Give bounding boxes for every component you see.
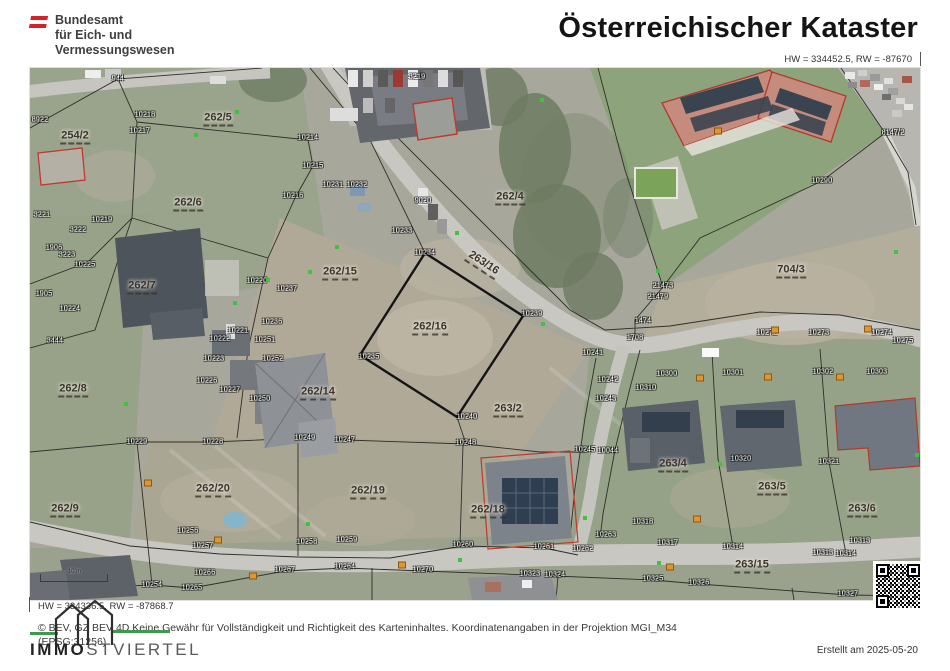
- parcel-number-label: 254/2: [60, 130, 90, 145]
- survey-point-label: 10217: [130, 128, 150, 135]
- green-survey-marker: [915, 453, 919, 457]
- coordinate-top-right: HW = 334452.5, RW = -87670: [784, 54, 912, 65]
- orange-boundary-marker: [836, 374, 844, 381]
- green-survey-marker: [266, 278, 270, 282]
- parcel-number-label: 262/19: [350, 485, 386, 500]
- agency-name: Bundesamt für Eich- und Vermessungswesen: [55, 13, 175, 58]
- survey-point-label: 10252: [263, 356, 283, 363]
- survey-point-label: 10234: [415, 250, 435, 257]
- survey-point-label: 10267: [275, 567, 295, 574]
- survey-point-label: 10301: [723, 370, 743, 377]
- parcel-number-label: 262/14: [300, 386, 336, 401]
- survey-point-label: 10245: [575, 447, 595, 454]
- orange-boundary-marker: [864, 326, 872, 333]
- green-survey-marker: [124, 402, 128, 406]
- survey-point-label: 10247: [335, 437, 355, 444]
- survey-point-label: 10263: [596, 532, 616, 539]
- survey-point-label: 10321: [819, 459, 839, 466]
- orange-boundary-marker: [714, 128, 722, 135]
- parcel-number-label: 262/18: [470, 504, 506, 519]
- cadastral-print-page: Bundesamt für Eich- und Vermessungswesen…: [0, 0, 950, 671]
- survey-point-label: 3221: [34, 212, 50, 219]
- survey-point-label: 10228: [203, 439, 223, 446]
- parcel-number-label: 262/8: [58, 383, 88, 398]
- parcel-number-label: 263/16: [464, 248, 502, 280]
- survey-point-label: 10274: [872, 330, 892, 337]
- survey-point-label: 8147/2: [882, 130, 905, 137]
- survey-point-label: 10324: [545, 572, 565, 579]
- parcel-number-label: 262/15: [322, 266, 358, 281]
- parcel-number-label: 262/20: [195, 483, 231, 498]
- survey-point-label: 10215: [303, 163, 323, 170]
- survey-point-label: 21473: [653, 283, 673, 290]
- green-survey-marker: [233, 301, 237, 305]
- survey-point-label: 10326: [689, 580, 709, 587]
- survey-point-label: 10224: [60, 306, 80, 313]
- survey-point-label: 10325: [643, 576, 663, 583]
- agency-line: Vermessungswesen: [55, 43, 175, 58]
- survey-point-label: 1906: [46, 245, 62, 252]
- parcel-number-label: 263/5: [757, 481, 787, 496]
- parcel-number-label: 263/15: [734, 559, 770, 574]
- survey-point-label: 10266: [195, 570, 215, 577]
- parcel-number-label: 262/9: [50, 503, 80, 518]
- green-survey-marker: [335, 245, 339, 249]
- corner-tick-bottom-left: [29, 597, 30, 612]
- survey-point-label: 10270: [413, 567, 433, 574]
- orange-boundary-marker: [398, 562, 406, 569]
- parcel-number-label: 262/16: [412, 321, 448, 336]
- parcel-number-label: 262/5: [203, 112, 233, 127]
- survey-point-label: 10222: [210, 336, 230, 343]
- corner-tick-top-right: [920, 52, 921, 66]
- survey-point-label: 10318: [633, 519, 653, 526]
- survey-point-label: 10221: [228, 328, 248, 335]
- survey-point-label: 10236: [262, 319, 282, 326]
- immostviertel-logo: IMMOSTVIERTEL: [30, 640, 201, 660]
- survey-point-label: 10216: [283, 193, 303, 200]
- survey-point-label: 10251: [255, 337, 275, 344]
- survey-point-label: 10262: [573, 546, 593, 553]
- survey-point-label: 10249: [295, 435, 315, 442]
- survey-point-label: 10242: [598, 377, 618, 384]
- survey-point-label: 10237: [277, 286, 297, 293]
- survey-point-label: 10261: [534, 544, 554, 551]
- green-survey-marker: [455, 231, 459, 235]
- scale-bar-line: [40, 574, 108, 582]
- survey-point-label: 10225: [75, 262, 95, 269]
- survey-point-label: 10256: [178, 528, 198, 535]
- survey-point-label: 10239: [522, 311, 542, 318]
- green-survey-marker: [894, 250, 898, 254]
- survey-point-label: 10218: [135, 112, 155, 119]
- map-label-overlay: 10 m 254/2262/5262/6262/7262/8262/9262/1…: [30, 68, 920, 600]
- survey-point-label: 1474: [635, 318, 651, 325]
- survey-point-label: 10235: [359, 354, 379, 361]
- agency-logo: Bundesamt für Eich- und Vermessungswesen: [30, 13, 175, 58]
- survey-point-label: 10275: [893, 338, 913, 345]
- survey-point-label: 10226: [197, 378, 217, 385]
- green-survey-marker: [306, 522, 310, 526]
- survey-point-label: 3444: [47, 338, 63, 345]
- orange-boundary-marker: [696, 375, 704, 382]
- survey-point-label: 1708: [627, 335, 643, 342]
- orange-boundary-marker: [764, 374, 772, 381]
- survey-point-label: 10219: [92, 217, 112, 224]
- survey-point-label: 10223: [204, 356, 224, 363]
- survey-point-label: 10233: [392, 228, 412, 235]
- survey-point-label: 10303: [867, 369, 887, 376]
- qr-code: [873, 561, 923, 611]
- parcel-number-label: 262/4: [495, 191, 525, 206]
- survey-point-label: 10313: [850, 538, 870, 545]
- created-date: Erstellt am 2025-05-20: [817, 645, 918, 656]
- green-survey-marker: [540, 98, 544, 102]
- survey-point-label: 10044: [598, 448, 618, 455]
- survey-point-label: 10327: [838, 591, 858, 598]
- survey-point-label: 10243: [596, 396, 616, 403]
- survey-point-label: 10229: [127, 439, 147, 446]
- brand-bold: IMMO: [30, 640, 86, 659]
- survey-point-label: 3219: [409, 74, 425, 81]
- survey-point-label: 10313: [813, 550, 833, 557]
- survey-point-label: 10257: [193, 543, 213, 550]
- survey-point-label: 10258: [297, 539, 317, 546]
- survey-point-label: 10314: [836, 551, 856, 558]
- green-survey-marker: [235, 110, 239, 114]
- parcel-number-label: 263/6: [847, 503, 877, 518]
- parcel-number-label: 263/2: [493, 403, 523, 418]
- green-survey-marker: [718, 462, 722, 466]
- survey-point-label: 10260: [453, 542, 473, 549]
- survey-point-label: 10214: [298, 135, 318, 142]
- survey-point-label: 10220: [247, 278, 267, 285]
- survey-point-label: 10323: [520, 571, 540, 578]
- parcel-number-label: 262/7: [127, 280, 157, 295]
- survey-point-label: 10241: [583, 350, 603, 357]
- green-survey-marker: [657, 561, 661, 565]
- survey-point-label: 10310: [636, 385, 656, 392]
- survey-point-label: 10264: [335, 564, 355, 571]
- page-title: Österreichischer Kataster: [558, 12, 918, 45]
- survey-point-label: 10250: [250, 396, 270, 403]
- survey-point-label: 10231: [323, 182, 343, 189]
- orange-boundary-marker: [144, 480, 152, 487]
- survey-point-label: 10314: [723, 544, 743, 551]
- survey-point-label: 10232: [347, 182, 367, 189]
- orange-boundary-marker: [214, 537, 222, 544]
- green-survey-marker: [541, 322, 545, 326]
- survey-point-label: 1905: [36, 291, 52, 298]
- green-survey-marker: [194, 133, 198, 137]
- survey-point-label: 10265: [182, 585, 202, 592]
- orange-boundary-marker: [771, 327, 779, 334]
- brand-rest: STVIERTEL: [86, 640, 201, 659]
- survey-point-label: 10273: [809, 330, 829, 337]
- survey-point-label: 3223: [59, 252, 75, 259]
- survey-point-label: 10320: [731, 456, 751, 463]
- orange-boundary-marker: [693, 516, 701, 523]
- survey-point-label: 10300: [657, 371, 677, 378]
- survey-point-label: 10302: [813, 369, 833, 376]
- green-survey-marker: [458, 558, 462, 562]
- survey-point-label: 10290: [812, 178, 832, 185]
- survey-point-label: 10240: [457, 414, 477, 421]
- green-survey-marker: [308, 270, 312, 274]
- orthophoto-cadastre-map: 10 m 254/2262/5262/6262/7262/8262/9262/1…: [30, 68, 920, 600]
- green-survey-marker: [583, 516, 587, 520]
- parcel-number-label: 263/4: [658, 458, 688, 473]
- orange-boundary-marker: [249, 573, 257, 580]
- scale-bar: 10 m: [40, 569, 109, 582]
- orange-boundary-marker: [666, 564, 674, 571]
- survey-point-label: 21479: [648, 294, 668, 301]
- survey-point-label: 3222: [70, 227, 86, 234]
- green-survey-marker: [656, 269, 660, 273]
- austria-flag-icon: [29, 16, 48, 28]
- survey-point-label: 10254: [142, 582, 162, 589]
- survey-point-label: 9020: [415, 198, 431, 205]
- survey-point-label: 10227: [220, 387, 240, 394]
- survey-point-label: 10317: [658, 540, 678, 547]
- survey-point-label: 8922: [32, 117, 48, 124]
- survey-point-label: 944: [112, 76, 124, 83]
- parcel-number-label: 704/3: [776, 264, 806, 279]
- agency-line: Bundesamt: [55, 13, 175, 28]
- parcel-number-label: 262/6: [173, 197, 203, 212]
- survey-point-label: 10248: [456, 440, 476, 447]
- map-frame: 10 m 254/2262/5262/6262/7262/8262/9262/1…: [30, 68, 920, 600]
- survey-point-label: 10259: [337, 537, 357, 544]
- agency-line: für Eich- und: [55, 28, 175, 43]
